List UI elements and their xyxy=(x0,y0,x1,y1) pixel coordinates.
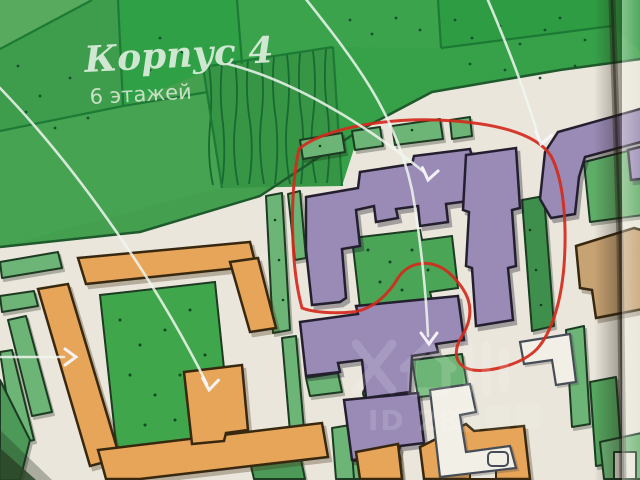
site-plan-photo: Корпус 4 6 этажей ID 28 xyxy=(0,0,640,480)
watermark-id: ID 28 xyxy=(368,404,460,437)
site-plan-canvas: Корпус 4 6 этажей ID 28 xyxy=(0,0,640,480)
watermark-id-obscured xyxy=(456,404,540,432)
page-fold xyxy=(594,0,640,480)
orange-building-inner-wing xyxy=(184,365,248,444)
